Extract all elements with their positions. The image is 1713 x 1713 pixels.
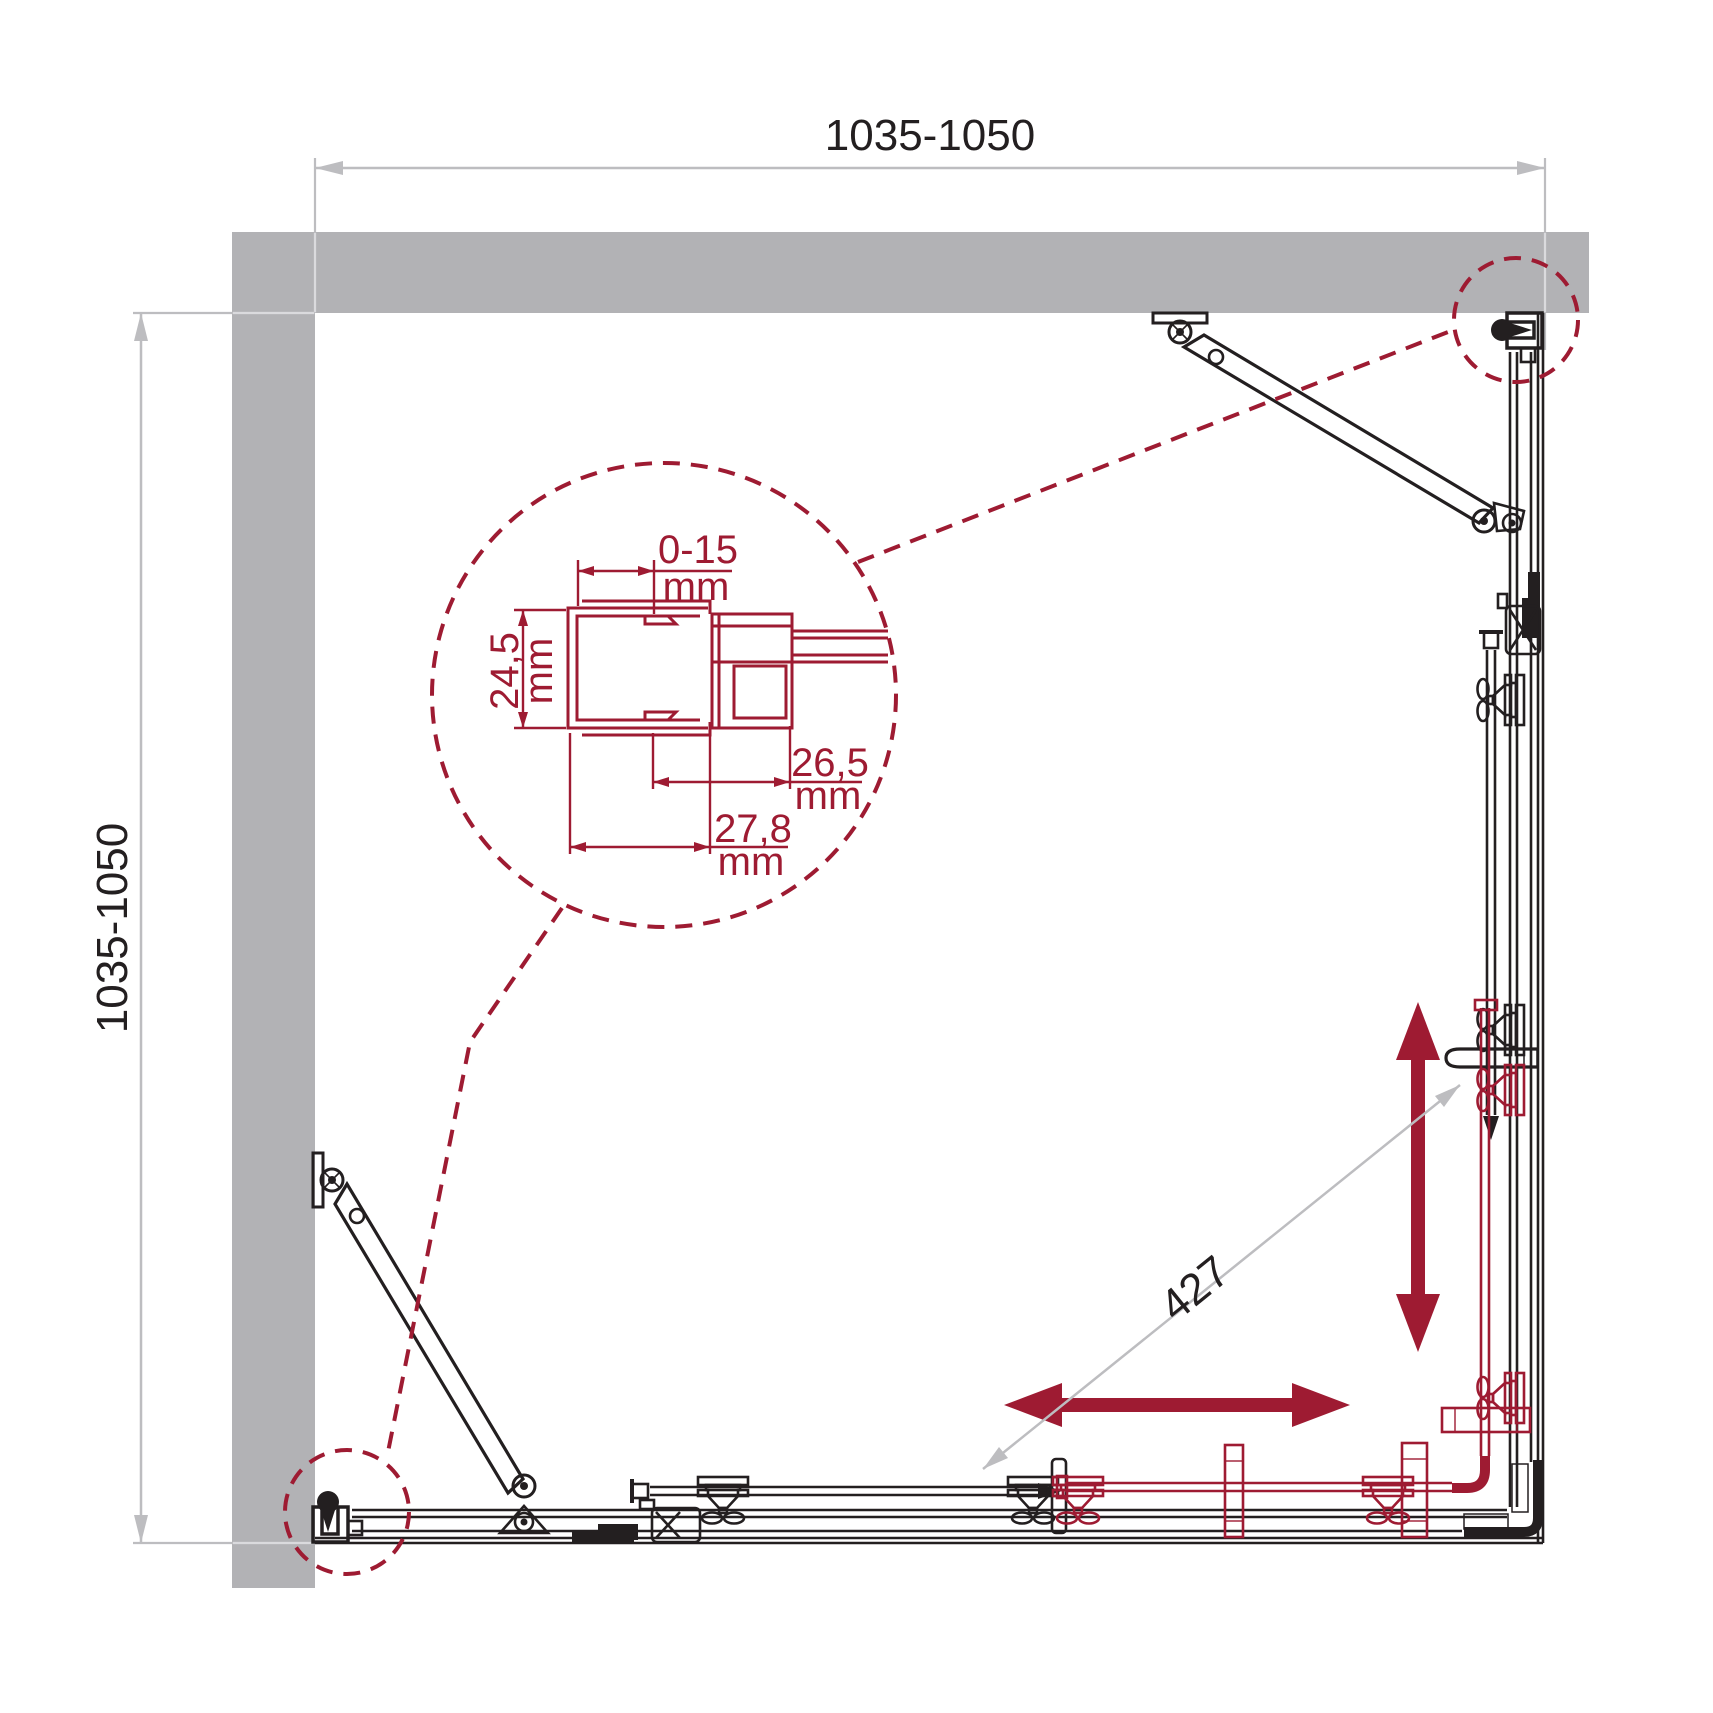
arrowhead-up-icon [134,313,148,341]
bottom-panel-assembly [313,1459,1543,1543]
door-end-cap [1484,632,1498,648]
left-wall [232,232,315,1588]
dim-width-label: 1035-1050 [825,111,1035,160]
slide-direction-arrows [1004,1002,1440,1427]
dimension-extension-lines [133,158,1545,1543]
dim-opening-label: 427 [1151,1247,1239,1331]
door-guide-cluster [572,1500,700,1542]
arm-hole [1209,350,1223,364]
inset-outer-unit: mm [795,774,862,818]
corner-elbow-open [1452,1456,1485,1488]
slide-arrow-horizontal-icon [1004,1383,1350,1427]
detail-leader-top [858,332,1448,562]
inset-gap-unit: mm [663,565,730,609]
support-arm-bottom-left [313,1153,548,1533]
dimension-width: 1035-1050 [315,111,1545,175]
right-panel-assembly [1446,313,1543,1543]
door-direction-arrow-icon [1483,1116,1499,1140]
arrowhead-right-icon [1517,161,1545,175]
walls [232,232,1589,1588]
screw-icon [317,1491,339,1513]
detail-leader-bottom [388,908,562,1452]
arm-hole [350,1209,364,1223]
arrowhead-down-icon [134,1515,148,1543]
profile-inset: 0-15 mm 24,5 mm 26,5 mm 27,8 mm [483,528,888,884]
support-arm-top-right [1153,313,1524,532]
inset-depth-unit: mm [517,638,561,705]
dimension-depth: 1035-1050 [88,313,148,1543]
door-guide-cluster [1498,572,1540,654]
screw-icon [1491,319,1513,341]
floor-plan-drawing: 1035-1050 1035-1050 [0,0,1713,1713]
technical-drawing-page: 1035-1050 1035-1050 [0,0,1713,1713]
dim-depth-label: 1035-1050 [88,823,137,1033]
arrowhead-left-icon [315,161,343,175]
corner-connector [1464,1460,1538,1532]
inset-profile-unit: mm [718,840,785,884]
slide-arrow-vertical-icon [1396,1002,1440,1352]
profile-channel [568,601,888,735]
support-arm-bar [335,1184,523,1493]
roller-carriage-icon [1478,675,1525,725]
door-end-cap [632,1484,648,1498]
door-open-positions [1053,1000,1530,1537]
support-arm-bar [1184,335,1493,523]
top-wall [315,232,1589,313]
roller-carriage-open-icon [1478,1065,1525,1115]
detail-callouts [285,258,1578,1574]
